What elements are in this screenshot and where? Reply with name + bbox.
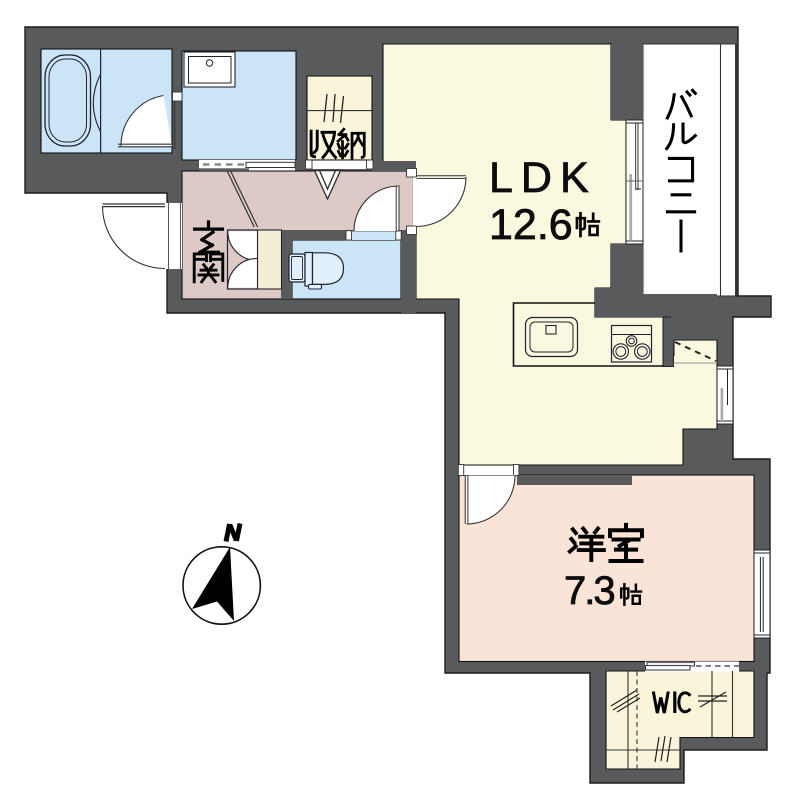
svg-text:LDK: LDK — [489, 154, 597, 202]
svg-text:7.3: 7.3 — [564, 569, 614, 613]
svg-text:12.6: 12.6 — [489, 201, 573, 249]
